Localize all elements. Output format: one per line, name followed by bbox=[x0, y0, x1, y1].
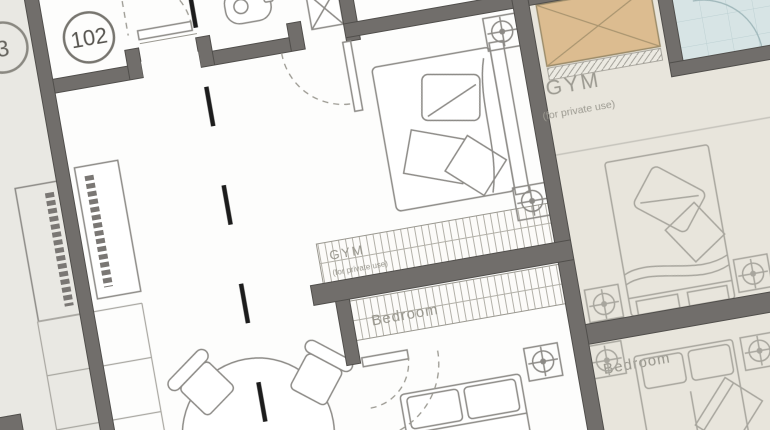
floor-plan-rotated-canvas: Bedroom bbox=[0, 0, 770, 430]
crossed-box-small bbox=[305, 0, 343, 30]
floor-plan-svg: Bedroom bbox=[0, 0, 770, 430]
pillow bbox=[422, 74, 480, 120]
double-bed-middle bbox=[371, 41, 530, 216]
floor-plan-viewport: Bedroom bbox=[0, 0, 770, 430]
